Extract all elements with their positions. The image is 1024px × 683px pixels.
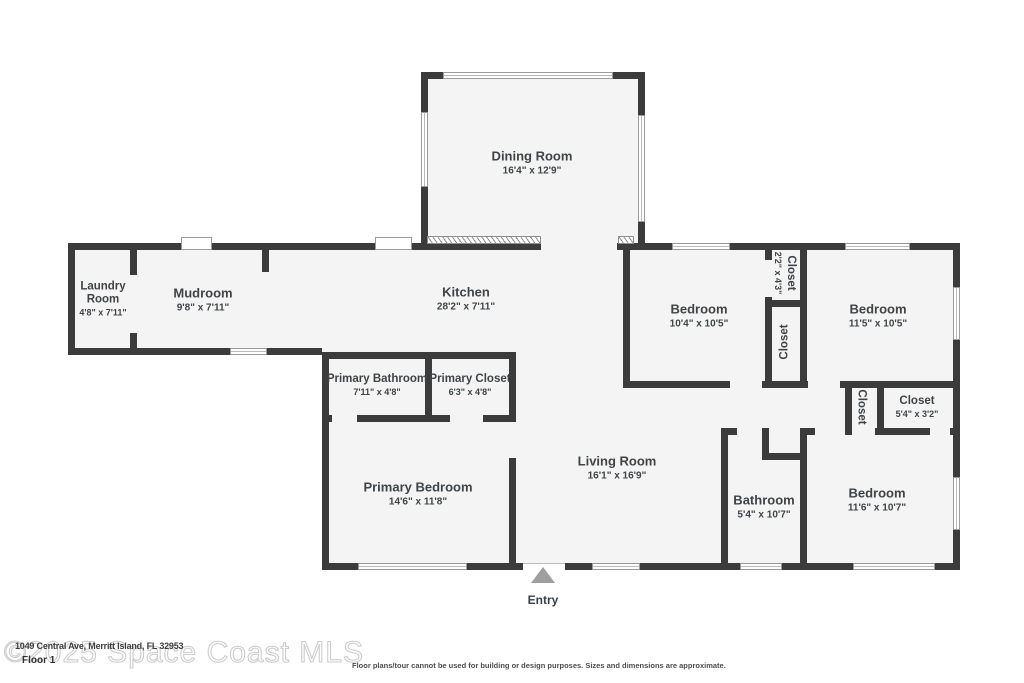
room-label-closet-4: Closet 5'4" x 3'2": [896, 395, 939, 419]
wall-segment: [762, 381, 808, 388]
wall-segment: [210, 243, 377, 250]
counter-hatch: [618, 236, 634, 244]
room-label-living-room: Living Room 16'1" x 16'9": [578, 455, 657, 482]
entry-label: Entry: [528, 593, 559, 607]
wall-segment: [130, 250, 137, 275]
wall-segment: [638, 72, 645, 118]
window: [230, 348, 267, 355]
door-frame: [181, 237, 212, 250]
room-label-closet-3: Closet: [854, 389, 867, 424]
window: [638, 115, 645, 222]
wall-segment: [623, 243, 672, 250]
wall-segment: [953, 243, 960, 287]
room-floor-area: [623, 381, 852, 435]
room-label-bedroom-2: Bedroom 11'5" x 10'5": [849, 303, 907, 330]
wall-segment: [322, 352, 516, 359]
window: [953, 287, 960, 340]
wall-segment: [68, 243, 183, 250]
wall-segment: [130, 333, 137, 348]
room-label-mudroom: Mudroom 9'8" x 7'11": [173, 287, 232, 314]
room-label-primary-closet: Primary Closet 6'3" x 4'8": [429, 373, 510, 397]
wall-segment: [68, 348, 230, 355]
window: [443, 72, 613, 79]
wall-segment: [421, 72, 428, 115]
wall-segment: [730, 243, 845, 250]
wall-segment: [427, 243, 541, 250]
room-label-kitchen: Kitchen 28'2" x 7'11": [437, 286, 495, 313]
wall-segment: [800, 428, 815, 435]
wall-segment: [935, 563, 960, 570]
wall-segment: [772, 300, 800, 307]
wall-segment: [509, 458, 516, 570]
wall-segment: [877, 385, 884, 432]
floor-plan-canvas: Dining Room 16'4" x 12'9" Laundry Room 4…: [0, 0, 1024, 683]
window: [845, 243, 910, 250]
wall-segment: [845, 428, 852, 435]
wall-segment: [721, 428, 728, 570]
door-frame: [375, 237, 412, 250]
room-label-bathroom: Bathroom 5'4" x 10'7": [733, 494, 794, 521]
address-overlay: 1049 Central Ave, Merritt Island, FL 329…: [15, 641, 183, 651]
room-label-laundry: Laundry Room 4'8" x 7'11": [71, 280, 135, 317]
wall-segment: [765, 250, 772, 260]
wall-segment: [845, 385, 852, 430]
counter-hatch: [427, 236, 541, 244]
window: [592, 563, 640, 570]
window: [672, 243, 730, 250]
floor-title: Floor 1: [22, 655, 55, 666]
room-floor-area: [68, 243, 630, 355]
wall-segment: [640, 563, 728, 570]
room-label-bedroom-3: Bedroom 11'6" x 10'7": [848, 487, 906, 514]
wall-segment: [950, 428, 960, 435]
wall-segment: [410, 243, 427, 250]
room-label-dining: Dining Room 16'4" x 12'9": [492, 150, 573, 177]
wall-segment: [721, 428, 737, 435]
window: [953, 477, 960, 530]
wall-segment: [800, 435, 807, 570]
wall-segment: [565, 563, 592, 570]
window: [421, 112, 428, 187]
window: [740, 563, 782, 570]
wall-segment: [267, 348, 322, 355]
wall-segment: [800, 250, 807, 381]
window: [853, 563, 935, 570]
wall-segment: [623, 381, 730, 388]
disclaimer-text: Floor plans/tour cannot be used for buil…: [352, 661, 726, 670]
room-label-primary-bathroom: Primary Bathroom 7'11" x 4'8": [327, 373, 427, 397]
entry-arrow-icon: [531, 567, 555, 583]
wall-segment: [782, 563, 853, 570]
wall-segment: [623, 250, 630, 388]
wall-segment: [875, 428, 930, 435]
room-label-bedroom-1: Bedroom 10'4" x 10'5": [670, 303, 729, 330]
room-label-closet-1: Closet 2'2" x 4'3": [773, 252, 797, 295]
room-label-primary-bedroom: Primary Bedroom 14'6" x 11'8": [363, 481, 472, 508]
wall-segment: [840, 381, 960, 388]
room-label-closet-2: Closet: [778, 324, 791, 359]
wall-segment: [953, 340, 960, 477]
window: [358, 563, 467, 570]
wall-segment: [262, 250, 269, 272]
wall-segment: [728, 563, 740, 570]
wall-segment: [357, 415, 450, 422]
wall-segment: [765, 297, 772, 385]
